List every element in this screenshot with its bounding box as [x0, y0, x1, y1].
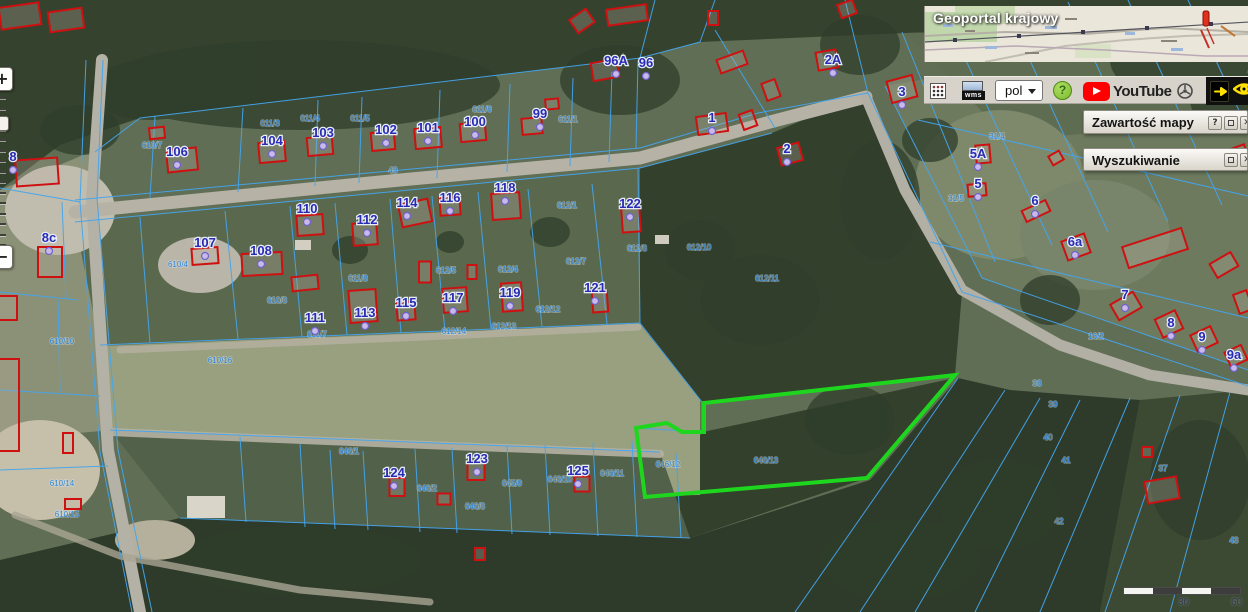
- house-number-label: 110: [297, 201, 318, 216]
- parcel-number-label: 611/6: [472, 105, 492, 114]
- address-point-marker: [202, 253, 209, 260]
- address-point-marker: [830, 70, 837, 77]
- parcel-number-label: 612/5: [436, 266, 457, 275]
- panel-close-button[interactable]: ✕: [1240, 153, 1248, 167]
- building-outline: [291, 275, 318, 292]
- address-point-marker: [507, 303, 514, 310]
- address-point-marker: [643, 73, 650, 80]
- maximize-icon: [1228, 120, 1234, 126]
- house-number-label: 8c: [42, 230, 56, 245]
- parcel-number-label: 645/9: [502, 479, 523, 488]
- address-point-marker: [627, 214, 634, 221]
- parcel-number-label: 41: [1062, 456, 1071, 465]
- parcel-number-label: 610/15: [55, 510, 80, 519]
- house-number-label: 104: [261, 133, 283, 148]
- house-number-label: 107: [194, 235, 216, 250]
- high-contrast-eye-button[interactable]: [1233, 80, 1248, 103]
- parcel-number-label: 646/2: [417, 484, 438, 493]
- address-point-marker: [10, 167, 17, 174]
- parcel-number-label: 612/13: [492, 322, 517, 331]
- parcel-number-label: 646/1: [339, 447, 360, 456]
- parcel-number-label: 37: [1159, 464, 1168, 473]
- address-point-marker: [502, 198, 509, 205]
- address-point-marker: [474, 469, 481, 476]
- zoom-out-button[interactable]: −: [0, 245, 13, 269]
- house-number-label: 96: [639, 55, 653, 70]
- parcel-number-label: 610/16: [208, 356, 233, 365]
- house-number-label: 9a: [1227, 347, 1242, 362]
- minimap-title: Geoportal krajowy: [933, 10, 1059, 26]
- building-outline: [419, 262, 431, 283]
- house-number-label: 119: [500, 285, 521, 300]
- house-number-label: 125: [567, 463, 589, 478]
- zoom-slider-tick: [0, 150, 6, 152]
- house-number-label: 96A: [604, 53, 628, 68]
- parcel-number-label: 40: [1044, 433, 1053, 442]
- house-number-label: 2A: [825, 52, 842, 67]
- scale-label-mid: 30: [1178, 597, 1189, 603]
- scale-segment: [1124, 588, 1153, 594]
- house-number-label: 8: [9, 149, 16, 164]
- panel-help-button[interactable]: ?: [1208, 116, 1222, 130]
- address-point-marker: [1032, 211, 1039, 218]
- house-number-label: 101: [417, 120, 439, 135]
- parcel-number-label: 612/11: [755, 274, 779, 283]
- search-panel: Wyszukiwanie ✕: [1083, 148, 1248, 171]
- house-number-label: 121: [584, 280, 606, 295]
- house-number-label: 7: [1121, 287, 1128, 302]
- building-outline: [0, 359, 19, 451]
- scale-bar: 30 60: [1123, 587, 1241, 595]
- help-button[interactable]: ?: [1053, 81, 1072, 100]
- parcel-number-label: 31/5: [948, 194, 964, 203]
- zoom-slider-tick: [0, 160, 6, 162]
- house-number-label: 1: [708, 110, 715, 125]
- house-number-label: 112: [357, 212, 378, 227]
- house-number-label: 106: [166, 144, 188, 159]
- zoom-slider-tick: [0, 192, 6, 194]
- address-point-marker: [1168, 333, 1175, 340]
- address-point-marker: [1231, 365, 1238, 372]
- building-outline: [708, 11, 718, 25]
- zoom-slider-tick: [0, 171, 6, 173]
- parcel-number-label: 48: [389, 166, 398, 175]
- parcel-number-label: 610/10: [50, 337, 75, 346]
- house-number-label: 115: [396, 295, 417, 310]
- house-number-label: 6: [1031, 193, 1038, 208]
- map-content-panel: Zawartość mapy ? ✕: [1083, 110, 1248, 134]
- parcel-number-label: 612/14: [442, 327, 467, 336]
- layer-grid-button[interactable]: [930, 83, 946, 99]
- accessibility-widget: [1206, 77, 1248, 105]
- zoom-slider-handle[interactable]: [0, 116, 9, 131]
- house-number-label: 124: [383, 465, 405, 480]
- address-point-marker: [269, 151, 276, 158]
- house-number-label: 99: [533, 106, 547, 121]
- zoom-slider-tick: [0, 213, 6, 215]
- house-number-label: 103: [312, 125, 334, 140]
- parcel-number-label: 646/8: [465, 502, 486, 511]
- parcel-number-label: 612/10: [687, 243, 712, 252]
- house-number-label: 111: [305, 310, 325, 325]
- address-point-marker: [784, 159, 791, 166]
- collapse-arrow-button[interactable]: [1210, 81, 1229, 102]
- parcel-number-label: 611/3: [260, 119, 280, 128]
- parcel-number-label: 646/12: [656, 460, 681, 469]
- house-number-label: 117: [443, 290, 464, 305]
- parcel-number-label: 612/12: [536, 305, 561, 314]
- building-outline: [15, 158, 59, 187]
- geoportal-map-view: 48611/1611/3611/4611/5611/6610/7610/4610…: [0, 0, 1248, 612]
- map-content-panel-title: Zawartość mapy: [1092, 115, 1194, 130]
- house-number-label: 6a: [1068, 234, 1083, 249]
- maximize-icon: [1228, 157, 1234, 163]
- address-point-marker: [613, 71, 620, 78]
- building-outline: [475, 548, 485, 560]
- house-number-label: 122: [619, 196, 641, 211]
- panel-maximize-button[interactable]: [1224, 153, 1238, 167]
- address-point-marker: [304, 219, 311, 226]
- overview-minimap[interactable]: Geoportal krajowy: [924, 6, 1248, 62]
- house-number-label: 114: [397, 195, 419, 210]
- scale-segment: [1211, 588, 1240, 594]
- address-point-marker: [1072, 252, 1079, 259]
- parcel-number-label: 610/7: [142, 141, 163, 150]
- address-point-marker: [1122, 305, 1129, 312]
- parcel-number-label: 646/13: [754, 456, 779, 465]
- panel-close-button[interactable]: ✕: [1240, 116, 1248, 130]
- building-outline: [63, 433, 73, 453]
- panel-maximize-button[interactable]: [1224, 116, 1238, 130]
- address-point-marker: [391, 483, 398, 490]
- map-toolbar: wms pol ? YouTube: [924, 76, 1248, 104]
- zoom-slider-tick: [0, 181, 6, 183]
- zoom-slider-tick: [0, 108, 6, 110]
- scale-segment: [1182, 588, 1211, 594]
- parcel-number-label: 38: [1033, 379, 1042, 388]
- address-point-marker: [975, 194, 982, 201]
- address-point-marker: [364, 230, 371, 237]
- house-number-label: 102: [375, 122, 397, 137]
- parcel-number-label: 612/1: [557, 201, 578, 210]
- eye-icon: [1233, 80, 1248, 98]
- address-point-marker: [404, 213, 411, 220]
- address-point-marker: [258, 261, 265, 268]
- address-point-marker: [899, 102, 906, 109]
- building-outline: [296, 214, 323, 236]
- address-point-marker: [592, 298, 599, 305]
- parcel-number-label: 16/2: [1088, 332, 1104, 341]
- zoom-in-button[interactable]: +: [0, 67, 13, 91]
- building-outline: [48, 8, 84, 33]
- wms-label: wms: [962, 91, 985, 100]
- address-point-marker: [362, 323, 369, 330]
- building-outline: [0, 2, 41, 29]
- language-select[interactable]: pol: [995, 80, 1043, 101]
- wms-button[interactable]: wms: [962, 81, 985, 101]
- address-point-marker: [425, 138, 432, 145]
- search-panel-title: Wyszukiwanie: [1092, 153, 1180, 168]
- parcel-number-label: 42: [1055, 517, 1064, 526]
- address-point-marker: [320, 143, 327, 150]
- zoom-slider-tick: [0, 223, 6, 225]
- address-point-marker: [312, 328, 319, 335]
- house-number-label: 3: [898, 84, 905, 99]
- house-number-label: 116: [440, 190, 461, 205]
- house-number-label: 108: [250, 243, 272, 258]
- house-number-label: 9: [1198, 329, 1205, 344]
- helm-settings-button[interactable]: [1176, 82, 1194, 100]
- language-value: pol: [1005, 83, 1022, 98]
- youtube-link[interactable]: YouTube: [1083, 81, 1171, 101]
- building-outline: [491, 192, 521, 220]
- building-outline: [149, 127, 165, 140]
- building-outline: [0, 296, 17, 320]
- youtube-play-icon: [1083, 82, 1110, 101]
- house-number-label: 113: [355, 305, 376, 320]
- zoom-slider-tick: [0, 139, 6, 141]
- parcel-number-label: 611/4: [300, 114, 320, 123]
- parcel-number-label: 610/14: [50, 479, 75, 488]
- parcel-number-label: 39: [1049, 400, 1058, 409]
- zoom-slider-tick: [0, 97, 6, 99]
- zoom-slider-tick: [0, 234, 6, 236]
- address-point-marker: [46, 248, 53, 255]
- address-point-marker: [472, 132, 479, 139]
- youtube-label: YouTube: [1113, 83, 1171, 100]
- scale-segment: [1153, 588, 1182, 594]
- address-point-marker: [174, 162, 181, 169]
- building-outline: [65, 499, 81, 509]
- parcel-number-label: 612/7: [566, 257, 587, 266]
- address-point-marker: [450, 308, 457, 315]
- address-point-marker: [1199, 347, 1206, 354]
- parcel-number-label: 612/8: [627, 244, 648, 253]
- house-number-label: 5: [974, 176, 981, 191]
- parcel-number-label: 612/4: [498, 265, 519, 274]
- address-point-marker: [575, 481, 582, 488]
- parcel-number-label: 611/5: [350, 114, 370, 123]
- address-point-marker: [447, 208, 454, 215]
- house-number-label: 8: [1167, 315, 1174, 330]
- wms-icon: [962, 81, 983, 91]
- house-number-label: 5A: [970, 146, 987, 161]
- building-outline: [468, 265, 477, 279]
- parcel-number-label: 611/8: [348, 274, 368, 283]
- parcel-number-label: 43: [1230, 536, 1239, 545]
- address-point-marker: [709, 128, 716, 135]
- helm-icon: [1176, 82, 1194, 100]
- building-outline: [1142, 447, 1152, 457]
- house-number-label: 2: [783, 141, 790, 156]
- house-number-label: 100: [464, 114, 486, 129]
- address-point-marker: [403, 313, 410, 320]
- address-point-marker: [537, 124, 544, 131]
- chevron-down-icon: [1028, 89, 1036, 94]
- house-number-label: 118: [495, 180, 516, 195]
- parcel-number-label: 646/11: [600, 469, 624, 478]
- parcel-number-label: 611/1: [558, 115, 578, 124]
- address-point-marker: [383, 140, 390, 147]
- parcel-number-label: 610/4: [168, 260, 189, 269]
- scale-label-end: 60: [1231, 597, 1242, 603]
- building-outline: [438, 494, 451, 505]
- zoom-slider-tick: [0, 202, 6, 204]
- address-point-marker: [975, 164, 982, 171]
- house-number-label: 123: [466, 451, 488, 466]
- building-outline: [1144, 476, 1179, 503]
- parcel-number-label: 31/4: [989, 132, 1005, 141]
- parcel-number-label: 610/8: [267, 296, 288, 305]
